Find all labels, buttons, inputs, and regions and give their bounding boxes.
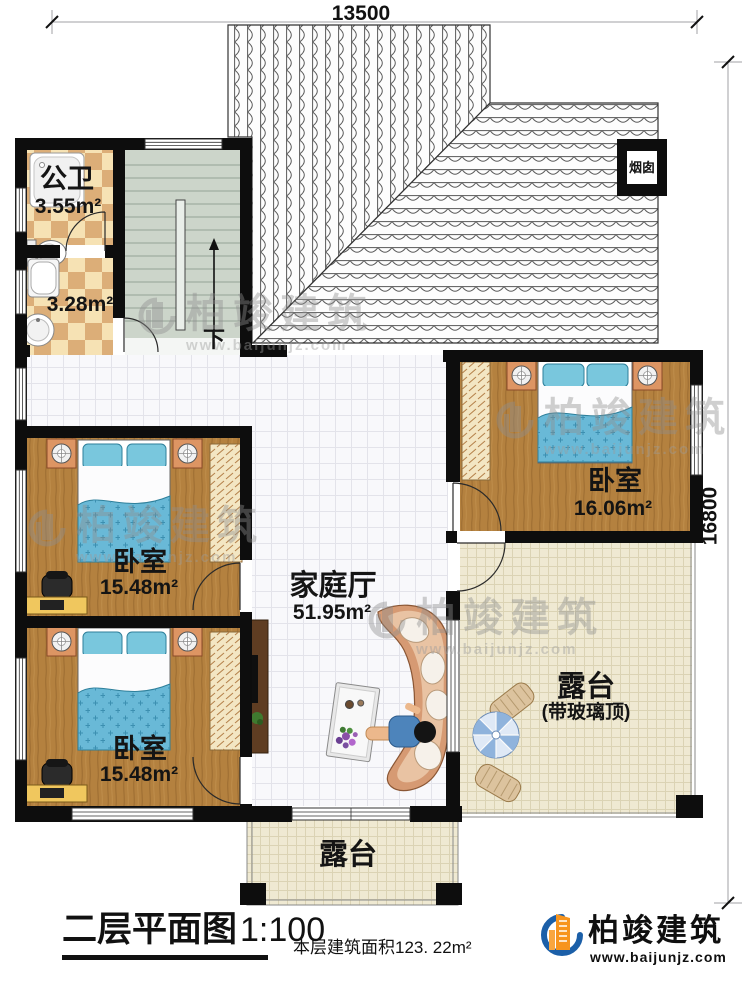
- brand-name: 柏竣建筑: [588, 915, 724, 946]
- floor-plan-page: 柏竣建筑 www.baijunjz.com 柏竣建筑 www.baijunjz.…: [0, 0, 750, 981]
- window-bedroom-bottom-south: [72, 808, 193, 820]
- window-bath2-left: [16, 270, 26, 314]
- bedroom-bottom-area: 15.48m²: [100, 764, 178, 785]
- plan-title-text: 二层平面图: [62, 910, 237, 949]
- public-bath-area: 3.55m²: [35, 196, 102, 217]
- dimension-right-label: 16800: [700, 487, 721, 545]
- pillar: [676, 795, 703, 818]
- public-bath-name: 公卫: [40, 166, 94, 193]
- brand-logo-icon: [536, 908, 588, 964]
- family-hall-name: 家庭厅: [289, 572, 376, 601]
- window-bedroom-mid-left: [16, 470, 26, 572]
- window-bedroom-right-east: [691, 385, 702, 475]
- family-hall-area: 51.95m²: [293, 602, 371, 623]
- floor-area-note: 本层建筑面积123. 22m²: [293, 938, 472, 958]
- roof: [228, 25, 667, 343]
- window-bedroom-bottom-left: [16, 658, 26, 760]
- chimney-label: 烟囱: [629, 161, 655, 174]
- pillar: [240, 883, 266, 905]
- bedroom-mid-name: 卧室: [113, 549, 167, 576]
- terrace-right-note: (带玻璃顶): [542, 703, 631, 722]
- dimension-top-label: 13500: [332, 3, 390, 24]
- brand-url: www.baijunjz.com: [590, 950, 727, 964]
- stairs-down-label: 下: [203, 329, 225, 351]
- bedroom-bottom-name: 卧室: [113, 736, 167, 763]
- terrace-bottom-name: 露台: [319, 841, 377, 870]
- bathtub: [28, 259, 59, 297]
- window-stairs-top: [145, 139, 222, 149]
- hall-floor-upper: [27, 355, 448, 426]
- bath-small-area: 3.28m²: [47, 294, 114, 315]
- plan-title: 二层平面图1:100: [62, 912, 325, 947]
- window-hall-left: [16, 368, 26, 420]
- window-bath1-left: [16, 188, 26, 232]
- window-hall-terrace: [447, 620, 459, 752]
- umbrella-table: [473, 712, 519, 758]
- bedroom-right-name: 卧室: [588, 468, 642, 495]
- title-underline: [62, 955, 268, 960]
- terrace-right-name: 露台: [557, 673, 615, 702]
- pillar: [436, 883, 462, 905]
- bedroom-mid-area: 15.48m²: [100, 577, 178, 598]
- sliding-door-terrace-bottom: [292, 808, 410, 820]
- bedroom-right-area: 16.06m²: [574, 498, 652, 519]
